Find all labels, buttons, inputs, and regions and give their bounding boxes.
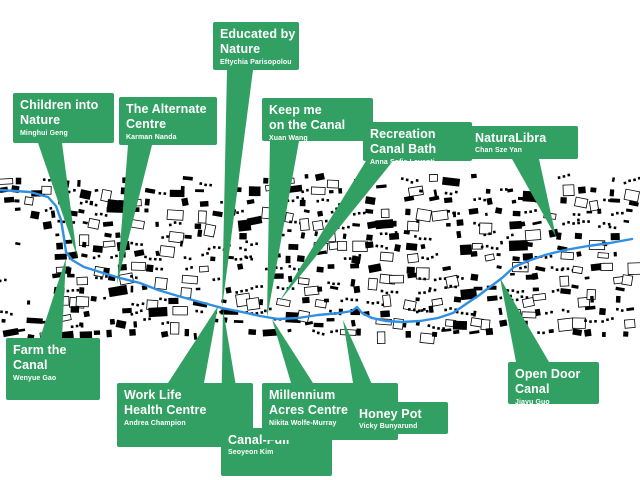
building xyxy=(355,299,358,302)
building xyxy=(16,178,22,185)
building xyxy=(473,222,476,225)
building xyxy=(394,244,401,252)
building xyxy=(442,266,451,271)
project-title: Work Life Health Centre xyxy=(124,388,246,419)
building xyxy=(533,287,539,291)
building xyxy=(495,207,502,214)
building xyxy=(406,243,418,251)
building xyxy=(76,325,79,328)
building xyxy=(194,333,198,340)
building xyxy=(578,186,586,193)
building xyxy=(144,208,148,212)
building xyxy=(549,329,554,333)
building-cluster xyxy=(312,329,325,335)
building xyxy=(381,290,384,293)
building xyxy=(442,177,460,187)
building xyxy=(449,307,452,310)
building xyxy=(301,197,304,200)
building xyxy=(301,232,306,239)
building-cluster xyxy=(551,266,564,271)
building xyxy=(161,331,169,338)
building xyxy=(169,223,172,226)
building xyxy=(316,266,323,272)
building xyxy=(197,229,202,237)
building xyxy=(110,319,115,325)
building xyxy=(313,220,324,230)
building xyxy=(470,274,478,281)
building xyxy=(247,216,263,226)
building xyxy=(624,189,639,202)
building xyxy=(280,267,283,270)
building xyxy=(198,211,206,223)
building-cluster xyxy=(143,318,151,321)
building xyxy=(155,277,168,289)
building xyxy=(234,320,243,323)
building xyxy=(204,183,207,186)
building xyxy=(55,254,67,260)
building-cluster xyxy=(130,241,143,246)
building xyxy=(511,233,514,236)
building-cluster xyxy=(430,253,438,259)
building xyxy=(183,176,193,181)
building xyxy=(249,186,261,196)
building xyxy=(344,257,347,260)
building xyxy=(471,251,478,257)
building xyxy=(0,178,13,184)
building-cluster xyxy=(623,177,640,185)
building xyxy=(577,219,580,222)
building xyxy=(557,289,560,292)
building xyxy=(507,188,513,192)
building xyxy=(391,290,394,293)
building xyxy=(532,273,539,280)
building xyxy=(366,234,373,240)
building xyxy=(483,199,486,202)
building xyxy=(608,223,611,226)
building xyxy=(314,231,318,236)
building xyxy=(91,296,97,302)
building xyxy=(478,197,481,200)
project-author: Xuan Wang xyxy=(269,135,366,142)
building xyxy=(393,318,404,329)
building xyxy=(584,319,587,322)
project-author: Andrea Champion xyxy=(124,420,246,427)
building xyxy=(43,221,53,230)
project-title: The Alternate Centre xyxy=(126,102,210,133)
building xyxy=(213,246,216,249)
building xyxy=(603,222,606,225)
building xyxy=(143,318,146,321)
building xyxy=(418,292,421,295)
building xyxy=(434,279,437,282)
building xyxy=(416,268,429,279)
building xyxy=(247,199,255,204)
building xyxy=(100,213,103,216)
building xyxy=(499,296,502,299)
building xyxy=(327,318,335,322)
building-cluster xyxy=(421,256,429,260)
building xyxy=(435,253,438,256)
building xyxy=(454,296,462,302)
building-cluster xyxy=(562,221,580,226)
building xyxy=(460,244,472,255)
building xyxy=(599,308,606,315)
building xyxy=(239,258,242,261)
building xyxy=(73,189,76,192)
building xyxy=(250,243,253,246)
building xyxy=(24,197,33,205)
building xyxy=(204,224,216,237)
building xyxy=(488,232,491,235)
building xyxy=(623,220,629,223)
building-cluster xyxy=(0,278,7,283)
building xyxy=(545,256,548,259)
building xyxy=(160,246,175,258)
building-cluster xyxy=(316,198,329,202)
building xyxy=(110,256,113,259)
building xyxy=(455,191,458,194)
building xyxy=(311,187,325,195)
building xyxy=(572,222,575,225)
building xyxy=(582,220,585,223)
building xyxy=(485,213,488,216)
building xyxy=(556,268,559,271)
building xyxy=(350,279,355,287)
building xyxy=(454,286,457,289)
building xyxy=(419,189,423,192)
building-cluster xyxy=(93,255,101,260)
building xyxy=(155,222,159,227)
building xyxy=(486,245,489,248)
building xyxy=(67,274,74,278)
map-label-the-alternate-centre: The Alternate CentreKarman Nanda xyxy=(119,97,217,145)
building xyxy=(255,285,258,288)
building xyxy=(163,192,166,195)
building-cluster xyxy=(131,300,144,308)
building xyxy=(428,290,431,293)
building xyxy=(426,257,429,260)
building xyxy=(601,263,613,270)
building xyxy=(208,248,211,251)
building xyxy=(305,174,309,179)
building xyxy=(628,179,631,182)
building xyxy=(381,209,389,217)
building xyxy=(17,328,25,332)
building xyxy=(218,246,221,249)
building xyxy=(376,184,387,188)
building xyxy=(474,287,483,291)
building xyxy=(456,231,461,238)
building xyxy=(300,200,306,206)
building xyxy=(302,297,310,304)
building-cluster xyxy=(327,281,340,287)
building xyxy=(115,232,120,238)
building xyxy=(292,287,295,290)
building xyxy=(145,199,150,206)
building xyxy=(289,220,292,223)
building xyxy=(244,248,247,251)
building xyxy=(62,221,65,224)
building xyxy=(71,289,74,292)
building xyxy=(15,242,20,245)
building xyxy=(421,256,424,259)
building xyxy=(304,286,319,295)
building xyxy=(149,258,152,261)
building xyxy=(633,178,636,181)
building xyxy=(513,211,521,217)
building xyxy=(585,276,590,279)
building xyxy=(377,301,380,304)
building-cluster xyxy=(236,210,244,214)
building xyxy=(444,197,453,203)
project-title: NaturaLibra xyxy=(475,131,571,146)
building xyxy=(141,302,144,305)
building xyxy=(396,291,399,294)
building xyxy=(55,233,59,236)
building xyxy=(510,273,515,276)
building xyxy=(556,232,562,240)
building xyxy=(432,298,443,306)
building-cluster xyxy=(161,235,169,239)
building xyxy=(429,196,440,202)
building-cluster xyxy=(609,226,617,230)
building xyxy=(545,312,548,315)
building xyxy=(368,278,377,290)
building xyxy=(602,332,606,337)
building xyxy=(185,268,188,271)
building xyxy=(263,178,268,184)
building xyxy=(486,189,491,194)
building xyxy=(471,174,477,179)
building xyxy=(522,297,534,307)
building xyxy=(525,230,541,241)
building xyxy=(103,221,113,227)
building xyxy=(106,330,112,338)
building xyxy=(407,253,418,262)
building-cluster xyxy=(0,310,13,315)
building xyxy=(343,233,347,239)
building xyxy=(160,268,163,271)
building xyxy=(567,221,570,224)
building xyxy=(182,275,198,284)
building xyxy=(519,267,522,270)
building xyxy=(439,277,442,280)
building-cluster xyxy=(169,221,182,227)
building xyxy=(429,238,432,241)
building xyxy=(427,324,430,327)
building xyxy=(416,297,420,301)
building-cluster xyxy=(545,310,553,315)
building xyxy=(335,330,338,333)
building xyxy=(0,310,3,313)
building xyxy=(326,199,329,202)
building xyxy=(363,212,366,215)
building xyxy=(195,189,204,192)
building xyxy=(611,213,614,216)
building xyxy=(589,320,592,323)
building xyxy=(506,236,509,239)
building xyxy=(330,286,339,290)
building xyxy=(410,181,413,184)
building xyxy=(288,265,291,268)
leader-wedge-educated-by-nature xyxy=(222,70,253,308)
building xyxy=(615,287,625,292)
building xyxy=(420,244,425,249)
building xyxy=(453,330,459,334)
building xyxy=(66,290,69,293)
building xyxy=(567,310,570,313)
building xyxy=(94,330,100,335)
building xyxy=(432,332,437,337)
building xyxy=(255,242,258,245)
building xyxy=(622,275,633,286)
building xyxy=(338,242,347,251)
building-cluster xyxy=(603,198,611,201)
building xyxy=(217,277,220,280)
building xyxy=(161,236,164,239)
building xyxy=(610,189,615,196)
building xyxy=(236,211,239,214)
building xyxy=(367,301,370,304)
building xyxy=(95,277,98,280)
building xyxy=(563,185,574,196)
building xyxy=(49,207,52,210)
building xyxy=(78,209,85,214)
building xyxy=(322,333,325,336)
building xyxy=(623,331,628,336)
building xyxy=(351,320,356,327)
building xyxy=(179,222,182,225)
building xyxy=(598,253,609,259)
building xyxy=(429,174,437,181)
building xyxy=(135,311,138,314)
building xyxy=(535,309,541,316)
building xyxy=(372,302,375,305)
building xyxy=(621,212,624,215)
building xyxy=(512,289,515,292)
building xyxy=(389,233,399,240)
building xyxy=(173,306,188,315)
building xyxy=(297,255,305,262)
building xyxy=(421,309,424,312)
building xyxy=(287,329,291,333)
building xyxy=(245,240,248,243)
building xyxy=(572,266,582,274)
map-label-educated-by-nature: Educated by NatureEftychia Parisopolou xyxy=(213,22,299,70)
building xyxy=(623,181,626,184)
building xyxy=(79,322,83,326)
building xyxy=(532,221,542,226)
building xyxy=(296,196,299,199)
building xyxy=(414,275,417,278)
building-cluster xyxy=(481,245,499,250)
project-author: Jiayu Guo xyxy=(515,399,592,406)
building-cluster xyxy=(80,199,98,207)
building xyxy=(498,308,502,315)
building xyxy=(380,252,393,261)
building xyxy=(603,198,606,201)
building xyxy=(265,268,268,271)
building-cluster xyxy=(601,317,614,323)
building xyxy=(500,241,503,245)
building xyxy=(358,212,361,215)
building xyxy=(368,263,382,273)
leader-wedge-work-life-health-centre xyxy=(168,306,218,383)
building xyxy=(27,300,30,304)
project-title: Children into Nature xyxy=(20,98,107,129)
building xyxy=(301,190,304,193)
building xyxy=(469,330,479,334)
building xyxy=(375,244,378,247)
map-label-naturalibra: NaturaLibraChan Sze Yan xyxy=(468,126,578,159)
building xyxy=(10,313,13,316)
building xyxy=(260,285,263,288)
project-title: Open Door Canal xyxy=(515,367,592,398)
building xyxy=(567,174,570,177)
building-cluster xyxy=(557,174,570,180)
building xyxy=(572,328,582,336)
building xyxy=(356,329,361,336)
building xyxy=(401,177,404,180)
building xyxy=(606,318,609,321)
project-title: Keep me on the Canal xyxy=(269,103,366,134)
building xyxy=(533,293,546,300)
building xyxy=(135,243,138,246)
building-cluster xyxy=(366,301,384,306)
building xyxy=(184,256,187,259)
building xyxy=(449,285,452,288)
building xyxy=(94,189,98,192)
building-cluster xyxy=(201,252,209,257)
building xyxy=(237,263,243,270)
project-author: Anna Sofia Lavanti xyxy=(370,159,465,166)
building xyxy=(259,299,263,305)
building xyxy=(131,262,145,270)
building xyxy=(377,332,385,344)
building xyxy=(276,298,290,307)
project-author: Eftychia Parisopolou xyxy=(220,59,292,66)
building xyxy=(472,244,482,250)
building xyxy=(282,234,285,237)
building xyxy=(43,178,46,181)
building xyxy=(154,258,157,261)
building xyxy=(140,309,143,312)
building xyxy=(432,210,449,221)
building xyxy=(195,310,198,313)
building xyxy=(380,310,390,317)
building xyxy=(550,255,553,258)
building-cluster xyxy=(95,212,108,218)
building xyxy=(575,233,582,239)
building xyxy=(239,247,242,250)
building xyxy=(130,313,133,316)
building xyxy=(140,243,143,246)
building xyxy=(72,221,75,224)
building xyxy=(365,209,373,214)
building xyxy=(453,212,456,218)
building xyxy=(537,331,540,334)
building xyxy=(597,209,601,214)
map-label-children-into-nature: Children into NatureMinghui Geng xyxy=(13,93,114,143)
building-cluster xyxy=(155,267,163,271)
building xyxy=(516,298,519,301)
building xyxy=(130,242,133,245)
building xyxy=(432,326,435,329)
building xyxy=(626,307,634,311)
building xyxy=(560,197,567,203)
building xyxy=(95,204,98,207)
building-cluster xyxy=(418,290,431,295)
